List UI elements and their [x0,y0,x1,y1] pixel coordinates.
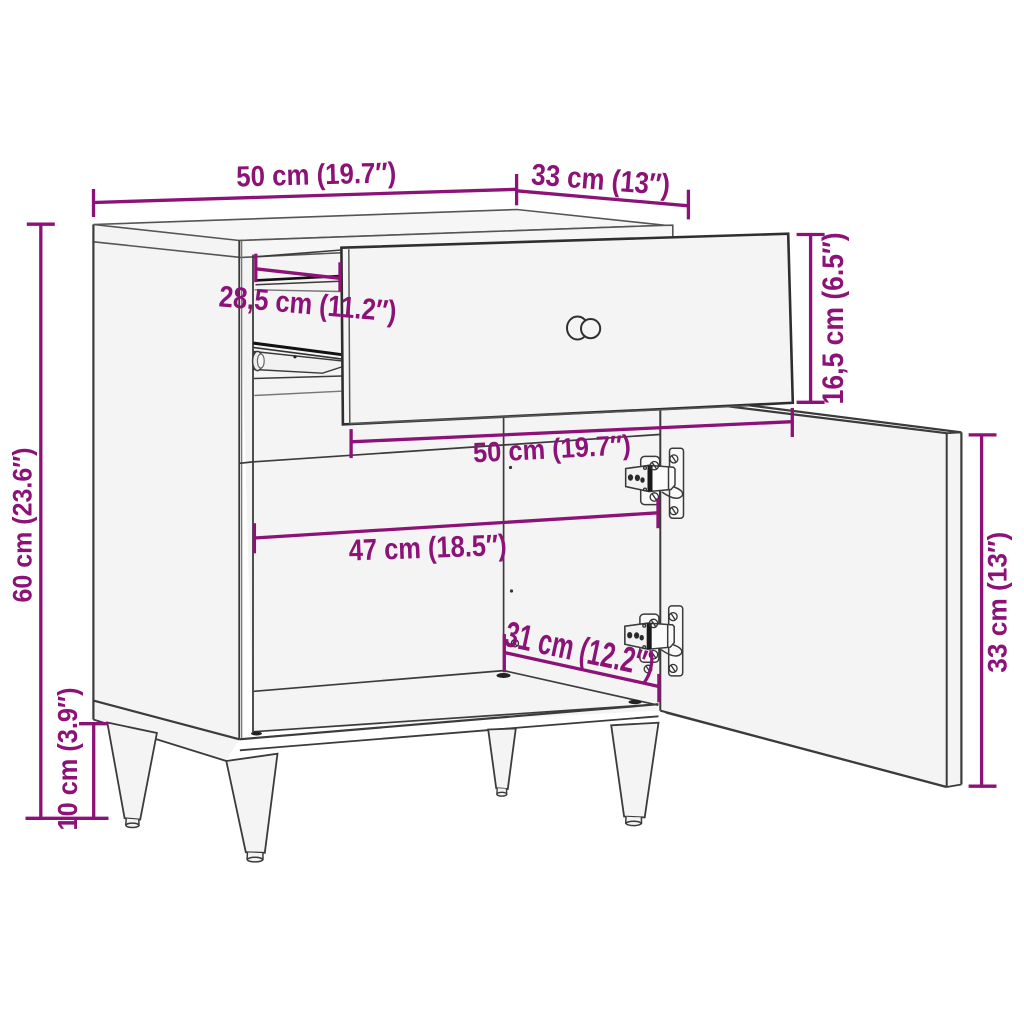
svg-text:33 cm (13″): 33 cm (13″) [982,532,1012,673]
svg-text:50 cm (19.7″): 50 cm (19.7″) [236,157,397,193]
svg-text:60 cm (23.6″): 60 cm (23.6″) [7,448,37,603]
svg-text:16,5 cm (6.5″): 16,5 cm (6.5″) [817,232,850,404]
svg-text:47 cm (18.5″): 47 cm (18.5″) [348,529,507,567]
svg-text:10 cm (3.9″): 10 cm (3.9″) [52,688,83,831]
